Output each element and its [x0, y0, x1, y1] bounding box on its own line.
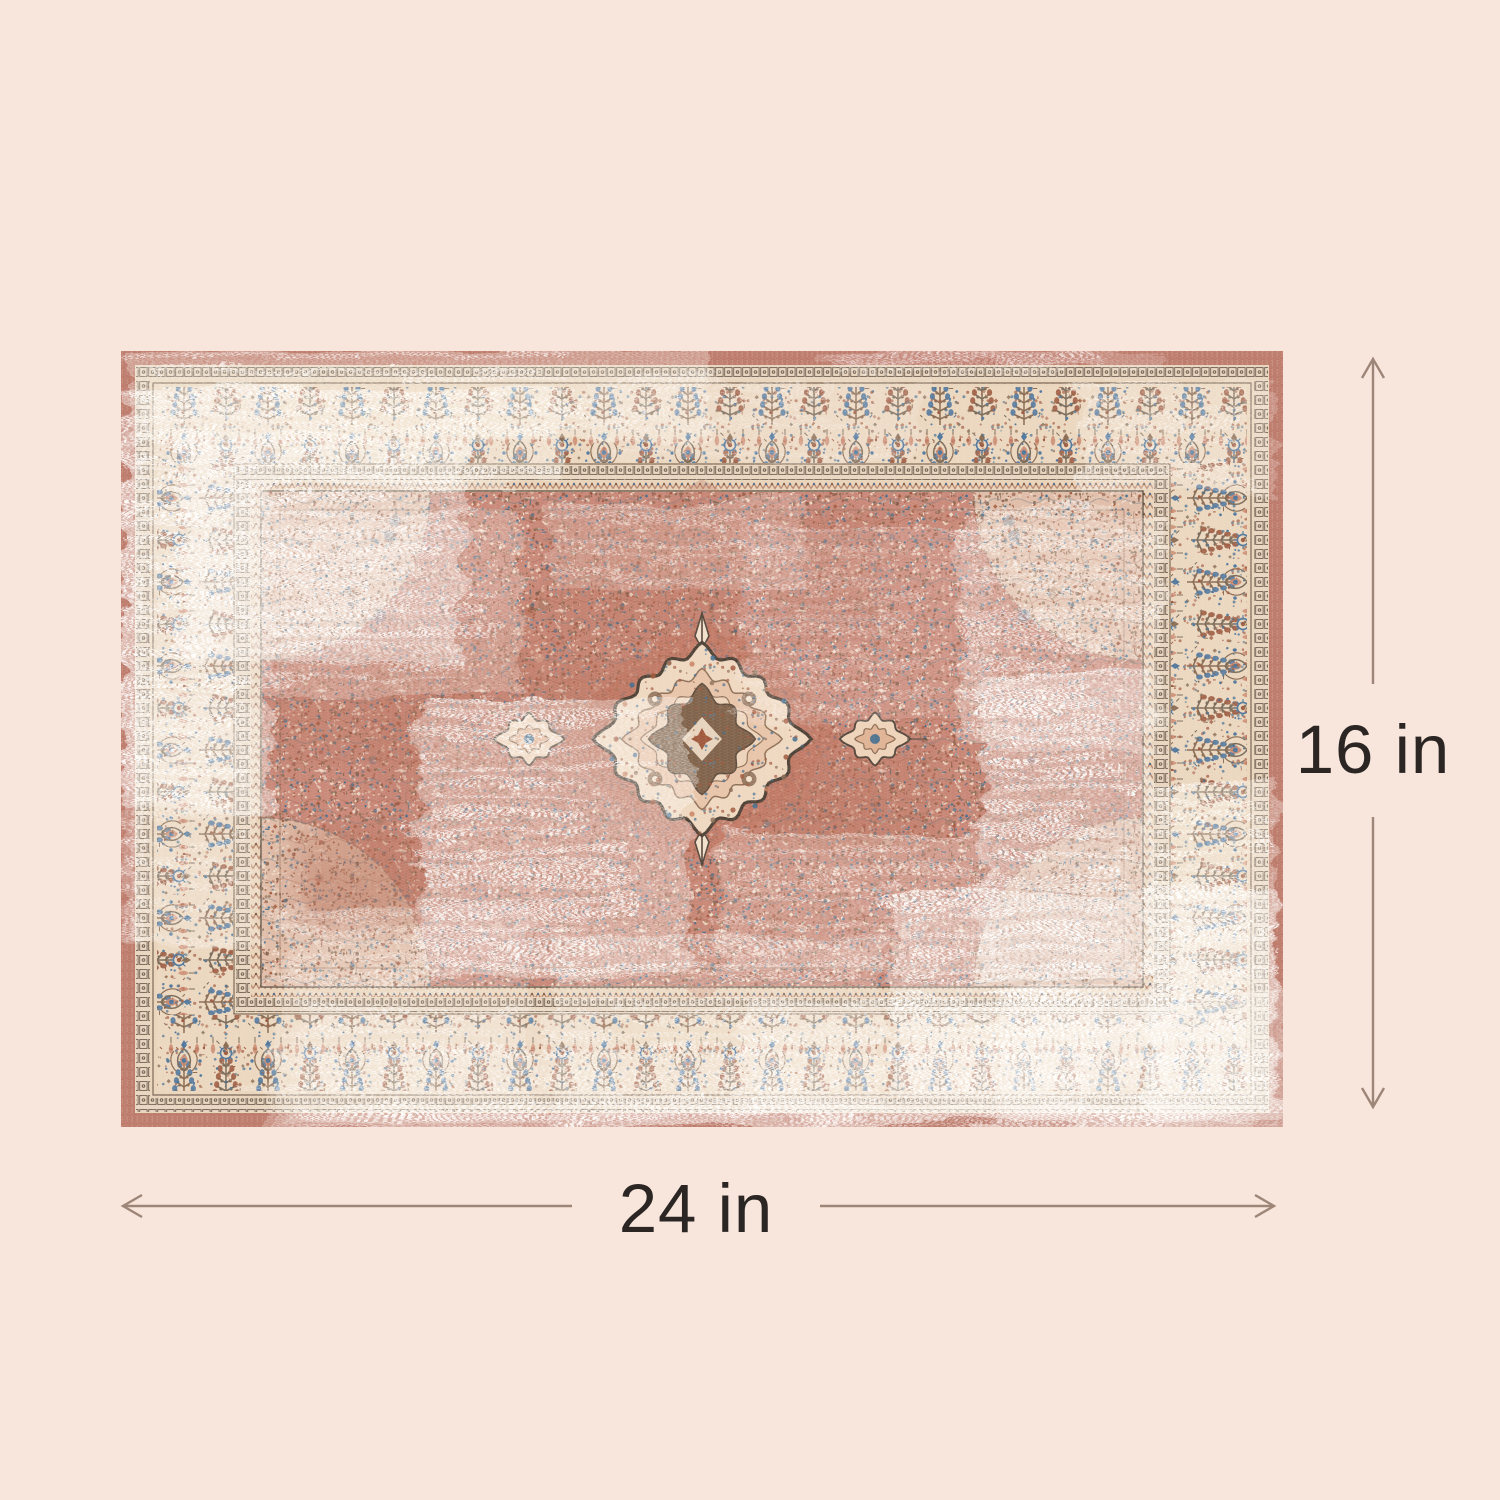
svg-text:16 in: 16 in — [1296, 711, 1451, 788]
svg-text:24 in: 24 in — [619, 1170, 774, 1247]
